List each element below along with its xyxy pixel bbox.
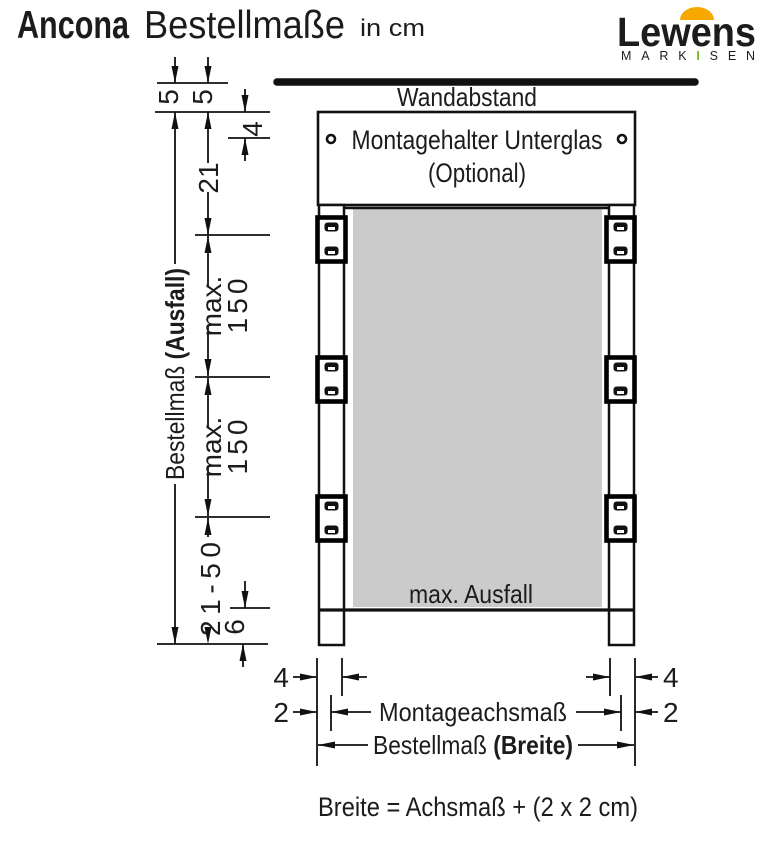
dim-axis-offset-left: 2 — [273, 697, 289, 728]
tagline-post: SEN — [710, 49, 755, 63]
dim-ausfall-label: Bestellmaß (Ausfall) — [160, 268, 190, 480]
wall-bracket-right-top — [607, 218, 635, 262]
unit-label: in cm — [360, 15, 425, 42]
wall-distance-label: Wandabstand — [397, 82, 537, 112]
dim-axis-offset-right: 2 — [663, 697, 679, 728]
tagline-bar: I — [696, 49, 699, 63]
max-ausfall-label: max. Ausfall — [409, 579, 533, 609]
page-title: Bestellmaße — [144, 4, 345, 47]
ancona-dimension-sheet: Ancona Bestellmaße in cm Lewens MARKISEN… — [0, 0, 768, 843]
right-post — [609, 205, 634, 645]
width-formula: Breite = Achsmaß + (2 x 2 cm) — [318, 792, 638, 822]
mounting-box: Montagehalter Unterglas (Optional) — [318, 112, 635, 205]
dim-post-width-left: 4 — [273, 662, 289, 693]
dim-max-drop-lower-value: 150 — [222, 420, 253, 475]
mounting-hole-right-icon — [618, 135, 626, 143]
wall-bracket-left-middle — [318, 358, 346, 402]
dim-ausfall-label-bold: (Ausfall) — [160, 268, 190, 359]
wall-bracket-left-top — [318, 218, 346, 262]
dim-breite-label-bold: (Breite) — [493, 730, 573, 760]
wall-bracket-left-bottom — [318, 497, 346, 541]
page-header: Ancona Bestellmaße in cm — [17, 4, 425, 47]
dim-wall-gap-a: 5 — [153, 89, 184, 105]
dim-bottom-profile: 6 — [219, 619, 250, 635]
dim-cassette-height: 21 — [193, 162, 224, 193]
fabric-panel — [353, 208, 602, 607]
mounting-box-label-line1: Montagehalter Unterglas — [352, 125, 603, 155]
dim-achsmass-label: Montageachsmaß — [379, 697, 567, 727]
mounting-box-label-line2: (Optional) — [428, 158, 526, 188]
dim-wall-gap-b: 5 — [187, 89, 218, 105]
wall-bracket-right-middle — [607, 358, 635, 402]
dim-breite-label-normal: Bestellmaß — [373, 730, 493, 760]
mounting-hole-left-icon — [327, 135, 335, 143]
brand-logo: Lewens MARKISEN — [617, 7, 756, 63]
left-post — [319, 205, 344, 645]
dim-breite-label: Bestellmaß (Breite) — [373, 730, 573, 760]
dim-post-width-right: 4 — [663, 662, 679, 693]
diagram-canvas: Ancona Bestellmaße in cm Lewens MARKISEN… — [0, 0, 768, 843]
product-name: Ancona — [17, 4, 129, 47]
dim-underglass-offset: 4 — [237, 121, 268, 137]
dim-ausfall-label-normal: Bestellmaß — [160, 359, 190, 480]
wall-bracket-right-bottom — [607, 497, 635, 541]
dim-max-drop-upper-value: 150 — [222, 279, 253, 334]
